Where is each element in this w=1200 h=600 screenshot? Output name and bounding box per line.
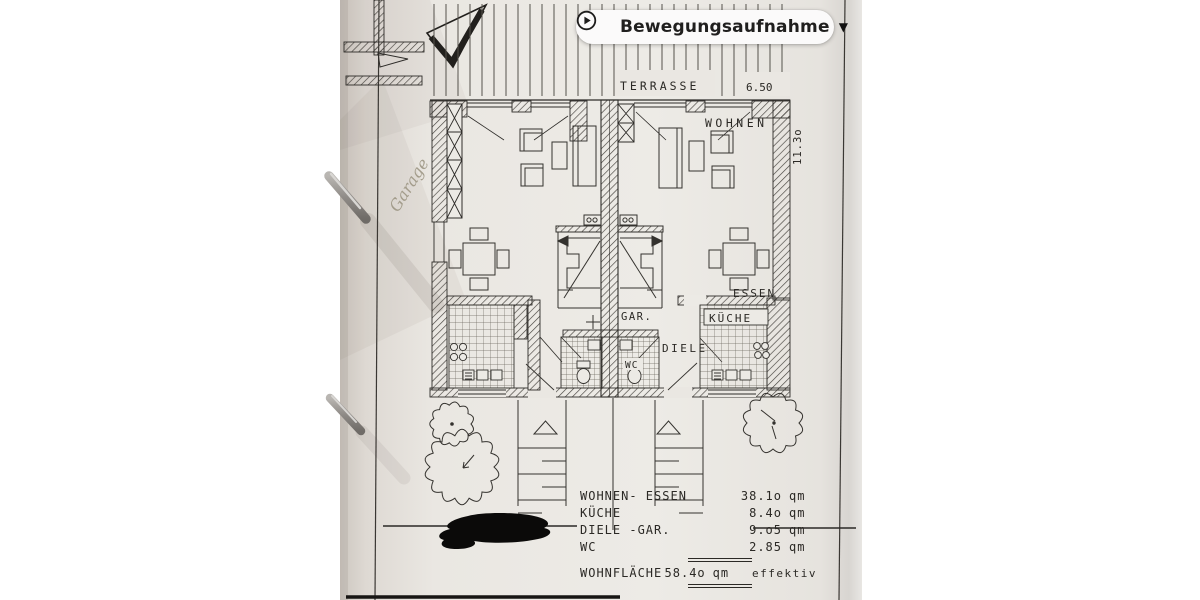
area-row-value: 9.o5	[730, 523, 782, 537]
area-row-unit: qm	[782, 540, 817, 554]
area-row-value: 2.85	[730, 540, 782, 554]
label-gar: GAR.	[621, 311, 652, 323]
label-wohnen: WOHNEN	[705, 116, 768, 130]
area-row-unit: qm	[782, 489, 817, 503]
wc-left	[561, 337, 602, 388]
area-row-label: DIELE -GAR.	[580, 523, 730, 537]
label-diele: DIELE	[662, 342, 708, 355]
area-row-value: 38.1o	[730, 489, 782, 503]
area-row: KÜCHE 8.4o qm	[580, 504, 817, 521]
area-row: WC 2.85 qm	[580, 538, 817, 555]
area-row-unit: qm	[782, 506, 817, 520]
label-depth-dim: 11.3o	[792, 128, 804, 165]
label-wc: WC	[625, 360, 638, 371]
area-total-suffix: effektiv	[736, 567, 817, 580]
area-table: WOHNEN- ESSEN 38.1o qm KÜCHE 8.4o qm DIE…	[580, 487, 817, 588]
table-separator	[688, 558, 752, 562]
play-icon	[590, 17, 611, 38]
terrace-label-group: TERRASSE 6.50	[615, 70, 790, 96]
area-total-label: WOHNFLÄCHE	[580, 566, 662, 580]
label-essen: ESSEN	[733, 287, 776, 300]
area-row-label: WC	[580, 540, 730, 554]
area-row-label: KÜCHE	[580, 506, 730, 520]
area-row: DIELE -GAR. 9.o5 qm	[580, 521, 817, 538]
chevron-down-icon: ▼	[839, 21, 848, 33]
area-total-unit: qm	[706, 566, 736, 580]
area-row-unit: qm	[782, 523, 817, 537]
label-terrasse: TERRASSE	[620, 79, 699, 93]
area-row-value: 8.4o	[730, 506, 782, 520]
area-row: WOHNEN- ESSEN 38.1o qm	[580, 487, 817, 504]
area-row-label: WOHNEN- ESSEN	[580, 489, 730, 503]
area-total-row: WOHNFLÄCHE 58.4o qm effektiv	[580, 564, 817, 582]
screenshot: Garage TERRASSE 6.50	[0, 0, 1200, 600]
label-kueche: KÜCHE	[709, 312, 752, 325]
label-terrace-dim: 6.50	[746, 81, 773, 94]
area-total-value: 58.4o	[662, 566, 705, 580]
total-underline	[688, 584, 752, 588]
motion-recording-label: Bewegungsaufnahme	[620, 17, 830, 37]
motion-recording-pill[interactable]: Bewegungsaufnahme ▼	[576, 10, 834, 44]
